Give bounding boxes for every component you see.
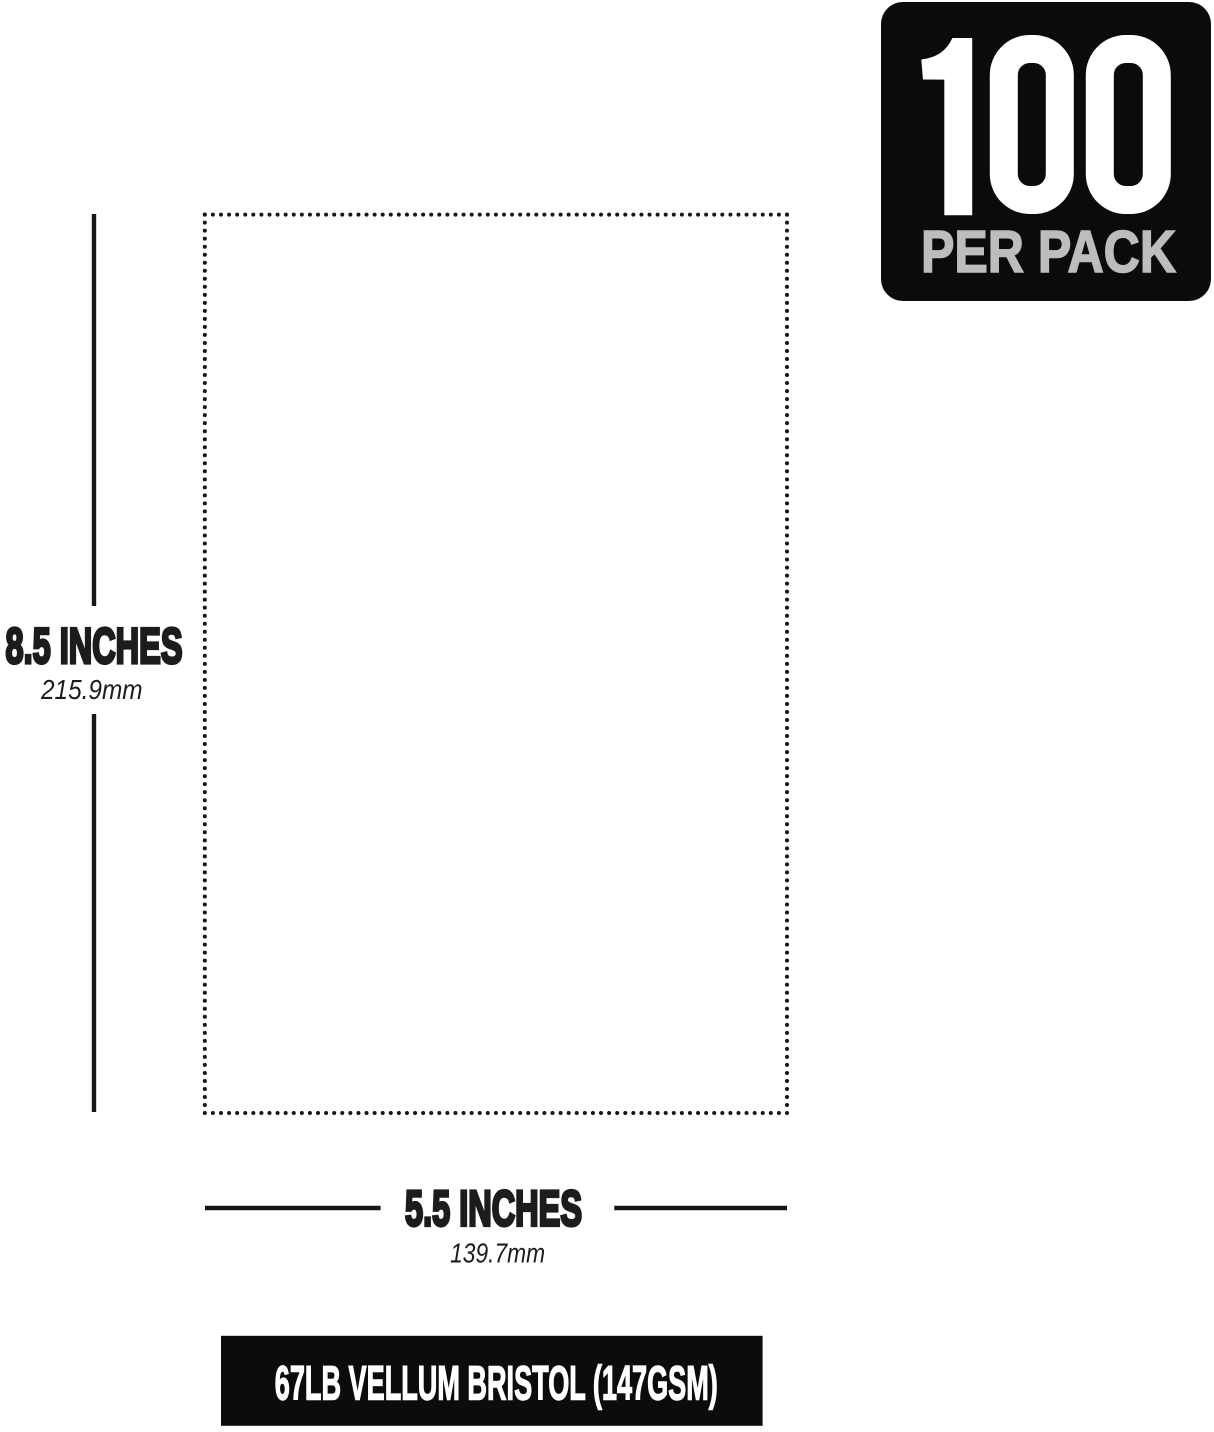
svg-text:5.5 INCHES: 5.5 INCHES	[405, 1181, 582, 1237]
svg-text:139.7mm: 139.7mm	[450, 1238, 545, 1269]
svg-text:PER PACK: PER PACK	[921, 218, 1176, 285]
svg-text:215.9mm: 215.9mm	[40, 674, 142, 705]
svg-text:67LB VELLUM BRISTOL (147GSM): 67LB VELLUM BRISTOL (147GSM)	[275, 1357, 718, 1411]
svg-text:8.5 INCHES: 8.5 INCHES	[6, 618, 183, 674]
